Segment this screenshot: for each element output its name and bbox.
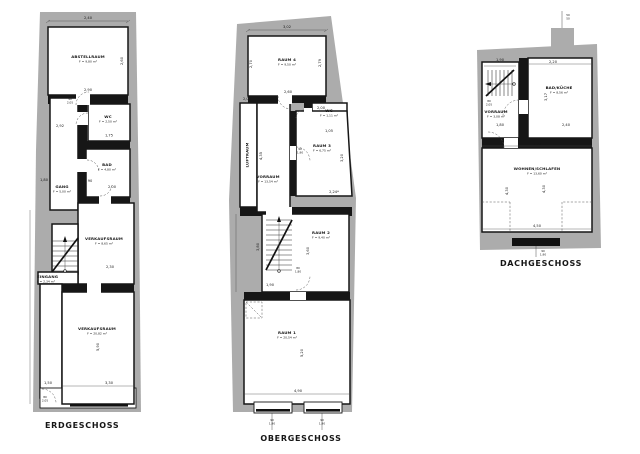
dim-label: 5,20 xyxy=(300,348,304,357)
door-opening xyxy=(99,196,111,205)
dim-label: 3,60 xyxy=(306,246,310,255)
window-size-label: 1,90 xyxy=(319,422,325,426)
dim-label: 2,40 xyxy=(84,16,93,20)
dim-label: 3,17 xyxy=(544,93,548,101)
dim-label: 2,30 xyxy=(106,265,115,269)
window-sill xyxy=(256,409,290,412)
room-area-label: F = 8,65 m² xyxy=(95,242,114,246)
door-size-label: 1,90 xyxy=(297,151,303,155)
room-label: VERKAUFSRAUM xyxy=(78,326,116,331)
room-area-label: F = 9,40 m² xyxy=(312,236,331,240)
room-label: EINGANG xyxy=(37,274,58,279)
floorplan-sheet: 2,40 2,60 2,90 90 2,05 1,75 2,92 2,00 1,… xyxy=(0,0,640,454)
dim-label: 3,30 xyxy=(105,381,114,385)
room-area-label: F = 13,60 m² xyxy=(527,172,548,176)
room-area-label: F = 9,50 m² xyxy=(278,63,297,67)
room-area-label: F = 8,56 m² xyxy=(550,91,569,95)
room-label: RAUM 3 xyxy=(313,143,331,148)
floorplan-erdgeschoss: 2,40 2,60 2,90 90 2,05 1,75 2,92 2,00 1,… xyxy=(30,12,141,430)
dim-label: 1,05 xyxy=(325,129,333,133)
dim-label: 2,79 xyxy=(519,77,523,86)
dim-label: 2,24* xyxy=(329,190,339,194)
door-opening xyxy=(304,108,312,119)
dim-label: 5,90 xyxy=(96,342,100,351)
dim-label: 4,35 xyxy=(259,152,263,160)
stair-start-dot xyxy=(513,83,516,86)
room-label: RAUM 1 xyxy=(278,330,296,335)
door-opening xyxy=(77,159,87,172)
room-label: VERKAUFSRAUM xyxy=(85,236,123,241)
room-raum3 xyxy=(296,111,352,196)
dim-label: 1,75 xyxy=(105,134,113,138)
dim-label: 2,60 xyxy=(120,56,124,65)
dim-label: 2,40 xyxy=(562,123,571,127)
door-size-label: 2,05 xyxy=(67,101,73,105)
dim-label: 2,00 xyxy=(108,185,117,189)
room-bad-kueche xyxy=(528,58,592,138)
room-area-label: F = 6,75 m² xyxy=(313,149,332,153)
storefront-sill xyxy=(70,404,128,407)
room-area-label: F = 4,80 m² xyxy=(98,168,117,172)
room-label: VORRAUM xyxy=(484,109,507,114)
floorplan-drawing: 2,40 2,60 2,90 90 2,05 1,75 2,92 2,00 1,… xyxy=(0,0,640,454)
door-opening xyxy=(266,207,292,216)
dim-label: 4,50 xyxy=(533,224,542,228)
room-area-label: F = 20,54 m² xyxy=(277,336,298,340)
door-size-label: 2,05 xyxy=(486,103,492,107)
dim-label: 2,92 xyxy=(56,124,64,128)
room-label: WOHNEN/SCHLAFEN xyxy=(514,166,561,171)
dim-label: 1,80 xyxy=(496,123,505,127)
room-area-label: F = 20,82 m² xyxy=(87,332,108,336)
room-label: ABSTELLRAUM xyxy=(71,54,105,59)
room-label: VORRAUM xyxy=(256,174,279,179)
room-area-label: F = 1,11 m² xyxy=(320,114,339,118)
door-size-label: 2,05 xyxy=(42,399,48,403)
window-size-label: 1,90 xyxy=(540,253,546,257)
window-sill xyxy=(306,409,340,412)
door-opening xyxy=(87,283,101,293)
room-area-label: F = 2,34 m² xyxy=(37,280,56,284)
dim-label: 3,80 xyxy=(256,242,260,251)
dim-label: 2,60 xyxy=(284,90,293,94)
floor-title-erdgeschoss: ERDGESCHOSS xyxy=(45,421,119,430)
floorplan-dachgeschoss: 50 50 1,90 2,20 2,79 3,17 80 2,05 1,80 2… xyxy=(477,11,601,268)
dim-label: 4,30 xyxy=(533,142,542,146)
room-bad xyxy=(86,149,130,197)
dim-label: 1,80 xyxy=(40,178,49,182)
dim-label: 4,30 xyxy=(542,184,546,193)
room-area-label: F = 2,50 m² xyxy=(99,120,118,124)
floorplan-obergeschoss: 3,02 2,70 2,79 2,60 80 2,05 1,05 2,06 4,… xyxy=(229,16,356,443)
room-label: WC xyxy=(325,108,332,113)
dim-label: 2,90 xyxy=(84,88,93,92)
floor-title-obergeschoss: OBERGESCHOSS xyxy=(260,434,341,443)
dim-label: 2,20 xyxy=(549,60,558,64)
room-area-label: F = 9,80 m² xyxy=(79,60,98,64)
window-sill xyxy=(512,238,560,246)
floor-title-dachgeschoss: DACHGESCHOSS xyxy=(500,259,582,268)
room-label: WC xyxy=(104,114,111,119)
dim-label: 4,30 xyxy=(505,186,509,195)
stair-start-dot xyxy=(278,270,281,273)
dim-label: 90 xyxy=(88,179,93,183)
window-size-label: 1,90 xyxy=(269,422,275,426)
room-area-label: F = 13,54 m² xyxy=(258,180,279,184)
stair-start-dot xyxy=(64,270,67,273)
door-opening xyxy=(504,138,518,148)
door-opening xyxy=(76,94,90,105)
door-opening xyxy=(290,292,306,300)
door-opening xyxy=(290,146,296,160)
dim-label: 2,79 xyxy=(318,58,322,67)
dim-label: 2,70 xyxy=(249,59,253,68)
door-size-label: 1,80 xyxy=(295,270,301,274)
dim-label: 1,90 xyxy=(496,58,505,62)
room-label: GANG xyxy=(55,184,68,189)
room-label: LUFTRAUM xyxy=(245,143,250,168)
dim-label: 3,20 xyxy=(340,153,344,162)
dim-label: 1,50 xyxy=(44,381,53,385)
room-label: BAD/KÜCHE xyxy=(546,85,573,90)
chimney xyxy=(551,28,574,52)
room-wohnen-schlafen xyxy=(482,148,592,232)
room-label: RAUM 2 xyxy=(312,230,330,235)
room-label: BAD xyxy=(102,162,112,167)
room-label: RAUM 4 xyxy=(278,57,296,62)
room-area-label: F = 3,08 m² xyxy=(487,115,506,119)
room-area-label: F = 5,00 m² xyxy=(53,190,72,194)
wall-segment xyxy=(86,141,130,149)
door-opening xyxy=(77,112,88,125)
door-opening xyxy=(278,95,292,104)
dim-label: 2,06 xyxy=(243,97,252,101)
wall-segment xyxy=(519,58,528,138)
dim-label: 4,90 xyxy=(294,389,303,393)
dim-label: 3,02 xyxy=(283,25,291,29)
chimney-size-label: 50 xyxy=(566,17,570,21)
dim-label: 1,90 xyxy=(266,283,275,287)
door-size-label: 2,05 xyxy=(269,101,275,105)
door-opening xyxy=(519,100,528,114)
